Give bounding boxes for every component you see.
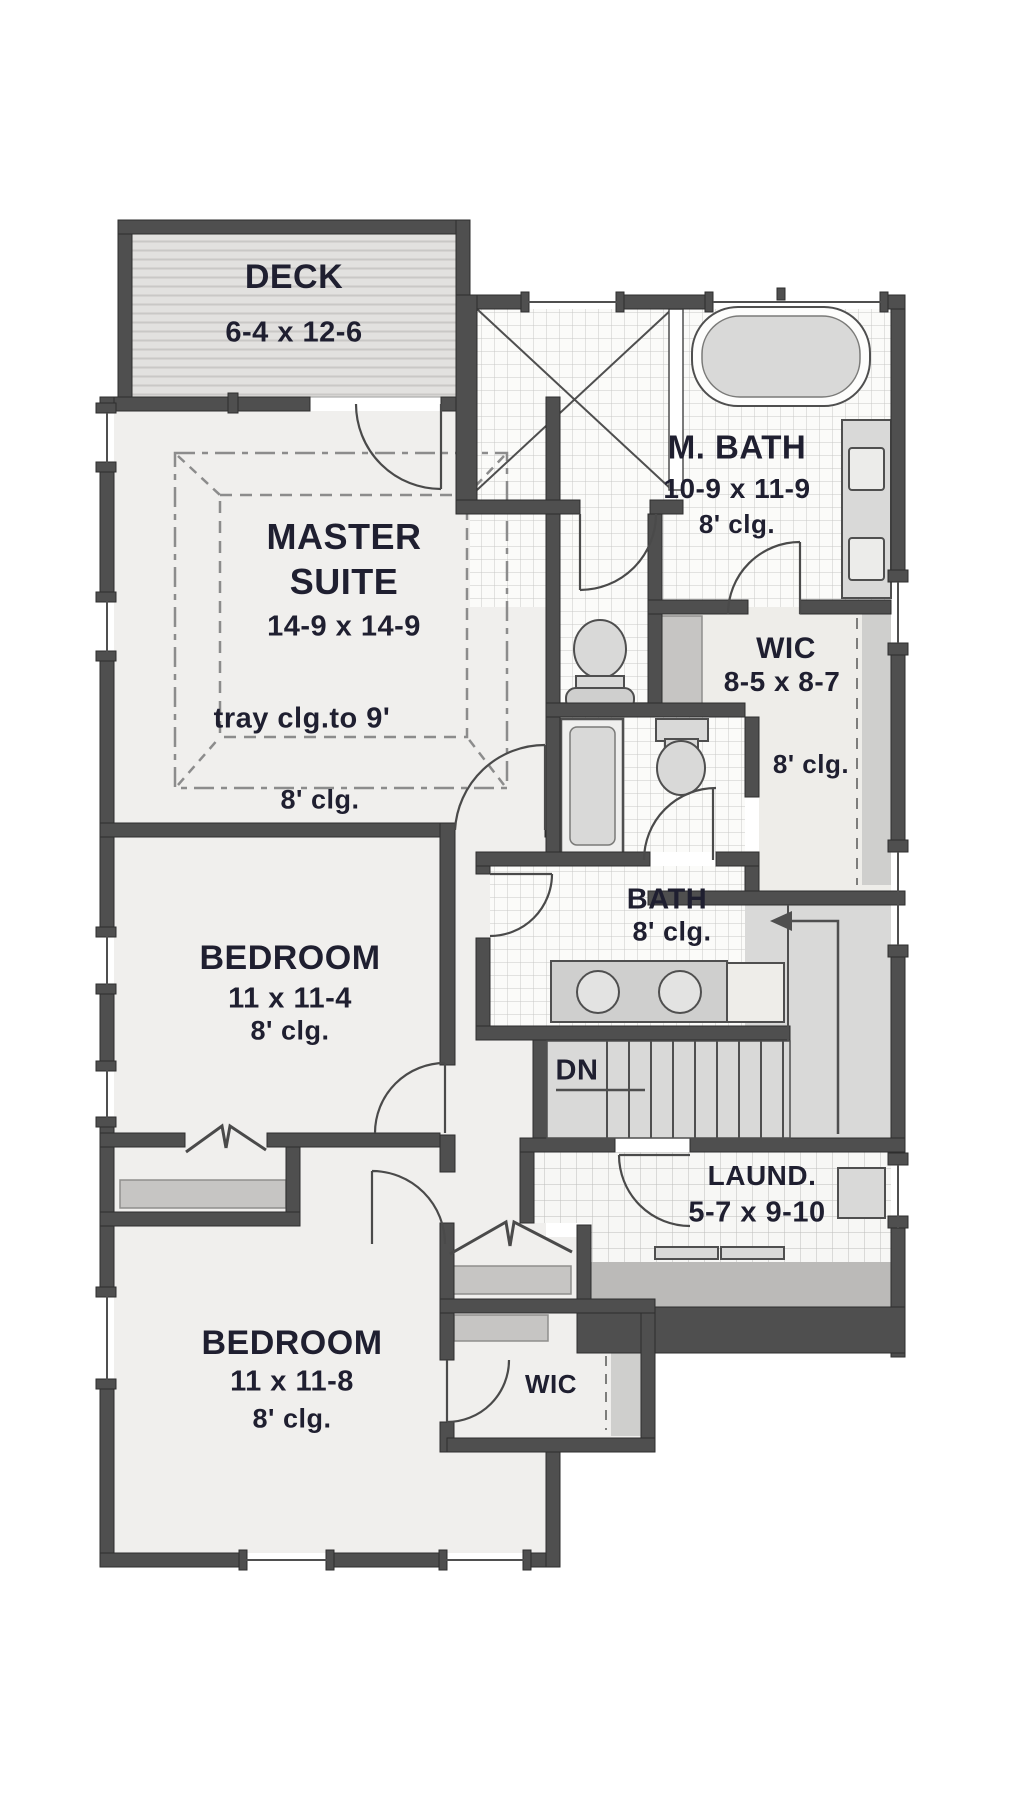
wic2-shelf (454, 1315, 548, 1341)
wall (440, 1135, 455, 1172)
wall (100, 990, 114, 1067)
wall (456, 500, 580, 514)
floor-plan: DECK 6-4 x 12-6 MASTER SUITE 14-9 x 14-9… (0, 0, 1024, 1811)
wall (100, 1212, 300, 1226)
wall (100, 397, 310, 411)
wall (891, 309, 905, 570)
bedroom2-dims: 11 x 11-8 (230, 1368, 354, 1397)
wall (267, 1133, 440, 1147)
bedroom1-dims: 11 x 11-4 (228, 985, 352, 1014)
wall (690, 1138, 905, 1152)
wall (330, 1553, 443, 1567)
hall-bath-cabinet (727, 963, 784, 1022)
wall (716, 852, 759, 866)
wall (440, 1299, 655, 1313)
master-sink-2 (849, 538, 884, 580)
floor-plan-drawing (0, 0, 1024, 1811)
hall-closet-shelf (453, 1266, 571, 1294)
wall (100, 1385, 114, 1553)
wic-shelf-right (862, 614, 891, 885)
bath-label: BATH (627, 886, 707, 915)
toilet-2-bowl (657, 741, 705, 795)
wall (800, 600, 891, 614)
deck-label: DECK (245, 260, 343, 294)
wall (118, 220, 470, 234)
laundry-label: LAUND. (708, 1162, 817, 1190)
wall (100, 823, 455, 837)
wall (546, 703, 745, 717)
wall (745, 717, 759, 797)
master-tub-inner (702, 316, 860, 397)
toilet-2-tank (656, 719, 708, 741)
wall (118, 220, 132, 411)
wall (228, 393, 238, 413)
window-center-tick (777, 288, 785, 300)
wall (520, 1138, 615, 1152)
washer-front (655, 1247, 718, 1259)
wic-label: WIC (756, 634, 816, 664)
wic2-label: WIC (525, 1371, 577, 1397)
wall (546, 1452, 560, 1567)
wall-chase (577, 1307, 905, 1353)
master-tray-note: tray clg.to 9' (214, 705, 391, 734)
bedroom2-label: BEDROOM (201, 1326, 382, 1360)
laundry-dims: 5-7 x 9-10 (688, 1199, 825, 1228)
wall (440, 823, 455, 1065)
dryer-front (721, 1247, 784, 1259)
stairs-dn-label: DN (556, 1057, 599, 1086)
wall (440, 1223, 454, 1299)
wall (440, 1313, 454, 1360)
laundry-cabinet (838, 1168, 885, 1218)
deck-dims: 6-4 x 12-6 (225, 319, 362, 348)
wall (100, 468, 114, 598)
wall (100, 1133, 185, 1147)
wall (476, 938, 490, 1040)
wall (546, 397, 560, 852)
master-dims: 14-9 x 14-9 (267, 613, 421, 642)
bedroom1-clg: 8' clg. (251, 1018, 330, 1045)
wic-dims: 8-5 x 8-7 (724, 668, 841, 696)
bath-clg: 8' clg. (633, 919, 712, 946)
wall (456, 295, 477, 511)
master-label-1: MASTER (267, 519, 422, 555)
wall (100, 1123, 114, 1295)
bedroom2-clg: 8' clg. (253, 1406, 332, 1433)
hall-tub-inner (570, 727, 615, 845)
wall (476, 866, 490, 874)
wall (891, 955, 905, 1153)
toilet-1-bowl (574, 620, 626, 678)
master-sink-1 (849, 448, 884, 490)
master-bath-dims: 10-9 x 11-9 (663, 475, 810, 503)
wall (620, 295, 713, 309)
wall (476, 1026, 790, 1040)
wall (286, 1147, 300, 1212)
wall (447, 1438, 655, 1452)
hall-sink-1 (577, 971, 619, 1013)
bedroom1-label: BEDROOM (199, 941, 380, 975)
wall (100, 1553, 243, 1567)
wall (520, 1152, 534, 1223)
master-bath-label: M. BATH (668, 431, 807, 464)
master-clg: 8' clg. (281, 787, 360, 814)
master-bath-clg: 8' clg. (699, 511, 775, 537)
wall (100, 657, 114, 933)
closet-a-shelf (120, 1180, 286, 1208)
master-label-2: SUITE (290, 564, 399, 600)
hall-sink-2 (659, 971, 701, 1013)
wall (648, 600, 748, 614)
wic-clg: 8' clg. (773, 751, 849, 777)
wall (533, 1040, 547, 1152)
wall (641, 1313, 655, 1452)
wall (476, 852, 650, 866)
wall (891, 655, 905, 840)
